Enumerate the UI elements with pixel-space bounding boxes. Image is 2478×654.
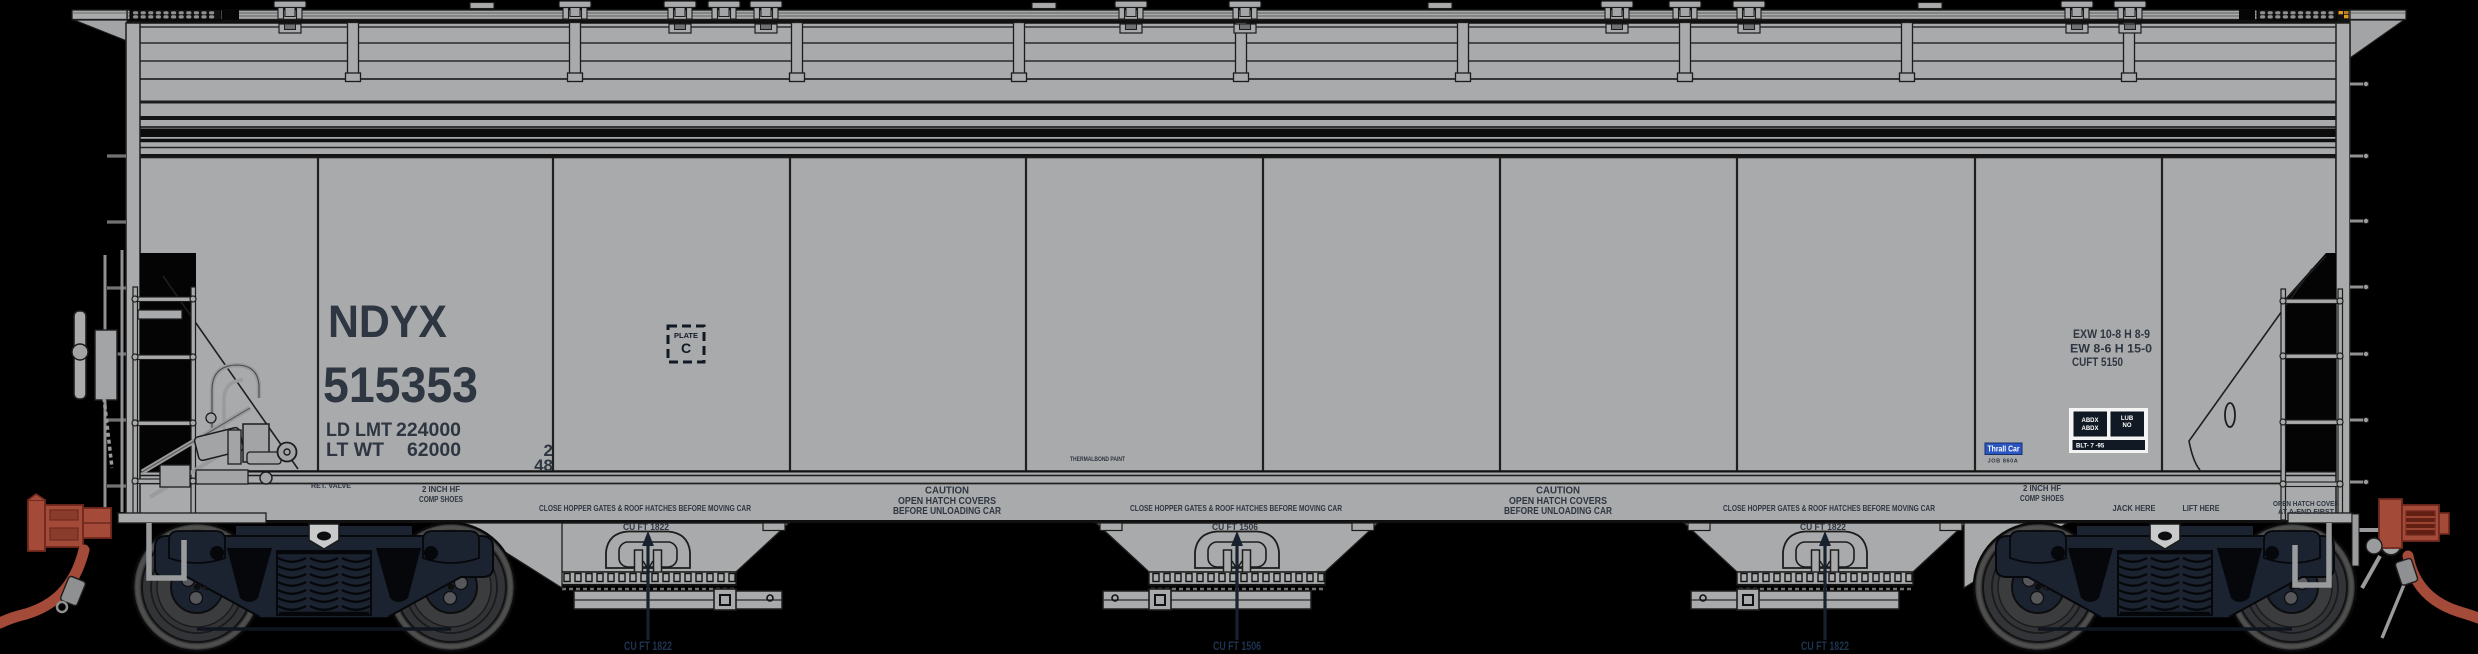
svg-text:CU FT 1506: CU FT 1506 bbox=[1212, 522, 1258, 532]
svg-text:CU FT 1506: CU FT 1506 bbox=[1213, 639, 1261, 653]
svg-text:BLT- 7 -95: BLT- 7 -95 bbox=[2076, 444, 2105, 450]
svg-text:COMP SHOES: COMP SHOES bbox=[2020, 494, 2065, 503]
svg-text:CLOSE HOPPER GATES & ROOF: CLOSE HOPPER GATES & ROOF HATCHES BEFORE… bbox=[539, 503, 751, 513]
svg-text:C: C bbox=[681, 340, 691, 356]
svg-text:LIFT HERE: LIFT HERE bbox=[2183, 504, 2221, 513]
svg-text:CLOSE HOPPER GATES & ROOF: CLOSE HOPPER GATES & ROOF HATCHES BEFORE… bbox=[1723, 503, 1935, 513]
svg-text:62000: 62000 bbox=[407, 440, 461, 461]
svg-text:EW 8-6 H 15-0: EW 8-6 H 15-0 bbox=[2070, 342, 2152, 356]
svg-text:RET. VALVE: RET. VALVE bbox=[311, 483, 352, 490]
svg-text:48: 48 bbox=[534, 456, 553, 475]
svg-text:CUFT 5150: CUFT 5150 bbox=[2072, 355, 2123, 369]
svg-text:AT A-END FIRST: AT A-END FIRST bbox=[2278, 507, 2334, 516]
svg-text:LT WT: LT WT bbox=[326, 440, 384, 461]
svg-text:CAUTION: CAUTION bbox=[1536, 486, 1580, 497]
svg-text:CLOSE HOPPER GATES & ROOF: CLOSE HOPPER GATES & ROOF HATCHES BEFORE… bbox=[1130, 503, 1342, 513]
svg-text:COMP SHOES: COMP SHOES bbox=[419, 495, 464, 504]
svg-text:CU FT 1822: CU FT 1822 bbox=[623, 522, 669, 532]
svg-text:NO: NO bbox=[2123, 423, 2132, 429]
svg-text:CU FT 1822: CU FT 1822 bbox=[624, 639, 672, 653]
svg-text:LUB: LUB bbox=[2121, 416, 2134, 422]
svg-text:LD LMT: LD LMT bbox=[326, 420, 392, 441]
svg-text:2 INCH HF: 2 INCH HF bbox=[2023, 484, 2061, 493]
svg-text:PLATE: PLATE bbox=[674, 331, 698, 340]
svg-text:ABDX: ABDX bbox=[2081, 418, 2098, 424]
svg-text:BEFORE UNLOADING CAR: BEFORE UNLOADING CAR bbox=[1504, 506, 1613, 517]
svg-text:ABDX: ABDX bbox=[2081, 426, 2098, 432]
svg-text:CU FT 1822: CU FT 1822 bbox=[1800, 522, 1846, 532]
svg-text:CAUTION: CAUTION bbox=[925, 486, 969, 497]
svg-text:JACK HERE: JACK HERE bbox=[2113, 504, 2157, 513]
svg-text:NDYX: NDYX bbox=[328, 296, 447, 347]
svg-text:2 INCH HF: 2 INCH HF bbox=[422, 485, 460, 494]
svg-text:EXW 10-8 H 8-9: EXW 10-8 H 8-9 bbox=[2073, 327, 2150, 341]
svg-text:BEFORE UNLOADING CAR: BEFORE UNLOADING CAR bbox=[893, 506, 1002, 517]
svg-text:224000: 224000 bbox=[396, 420, 461, 441]
svg-text:JOB 860A: JOB 860A bbox=[1988, 459, 2019, 465]
svg-text:515353: 515353 bbox=[323, 357, 478, 413]
svg-text:Thrall Car: Thrall Car bbox=[1988, 444, 2021, 454]
svg-text:CU FT 1822: CU FT 1822 bbox=[1801, 639, 1849, 653]
svg-text:THERMALBOND PAINT: THERMALBOND PAINT bbox=[1070, 456, 1125, 463]
